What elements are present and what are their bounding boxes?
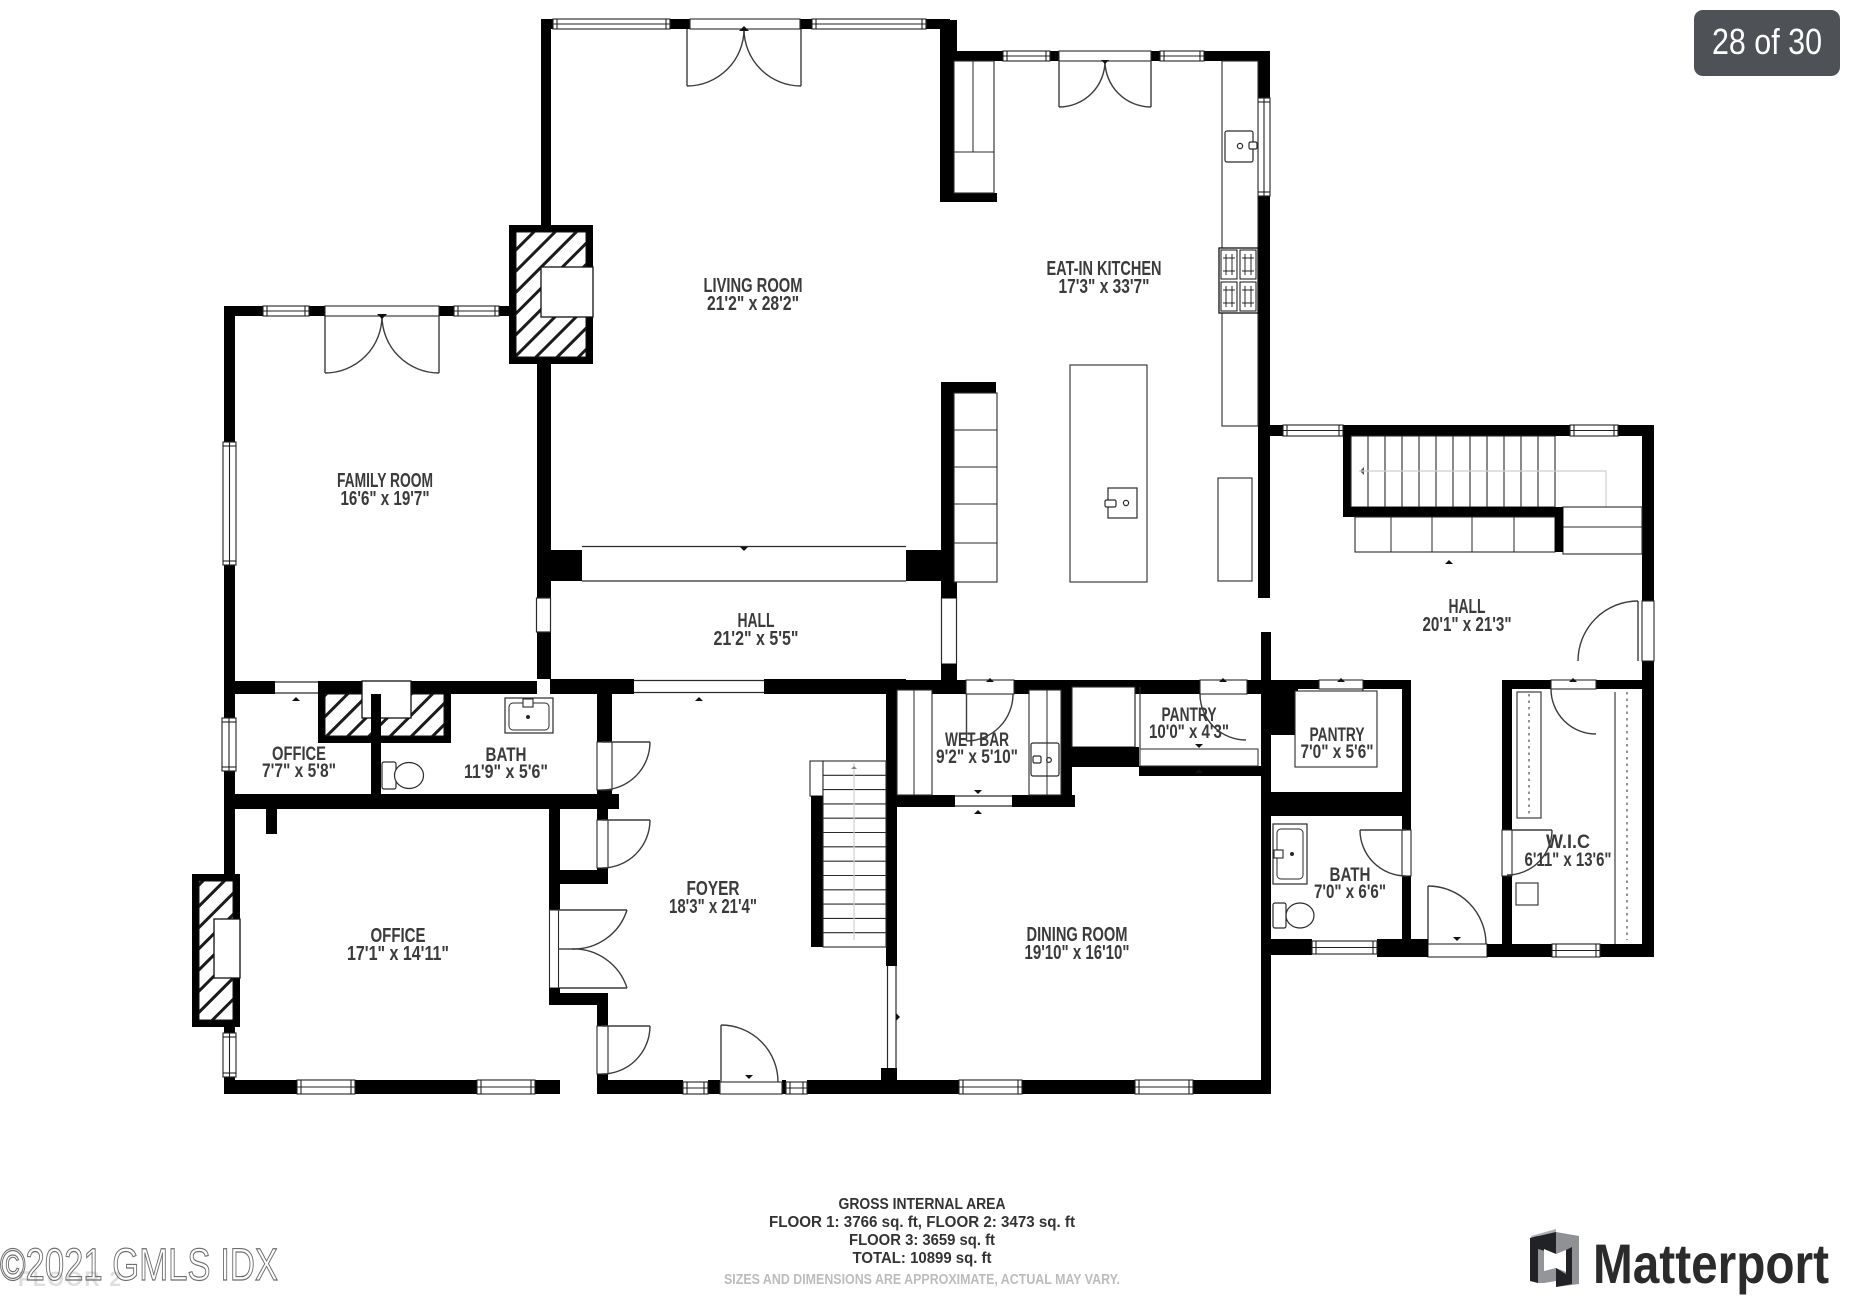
svg-text:SIZES AND DIMENSIONS ARE APPRO: SIZES AND DIMENSIONS ARE APPROXIMATE, AC… xyxy=(724,1272,1120,1288)
svg-text:7'0" x 5'6": 7'0" x 5'6" xyxy=(1301,742,1374,763)
svg-text:6'11" x 13'6": 6'11" x 13'6" xyxy=(1525,850,1612,871)
svg-text:©2021 GMLS IDX: ©2021 GMLS IDX xyxy=(0,1239,278,1290)
svg-text:FLOOR 3: 3659 sq. ft: FLOOR 3: 3659 sq. ft xyxy=(849,1232,996,1249)
svg-text:16'6" x 19'7": 16'6" x 19'7" xyxy=(341,488,430,510)
svg-text:10'0" x 4'3": 10'0" x 4'3" xyxy=(1149,722,1229,743)
svg-text:7'7" x 5'8": 7'7" x 5'8" xyxy=(262,761,336,782)
svg-text:19'10" x 16'10": 19'10" x 16'10" xyxy=(1025,942,1130,964)
svg-text:18'3" x 21'4": 18'3" x 21'4" xyxy=(669,896,757,918)
svg-text:17'1" x 14'11": 17'1" x 14'11" xyxy=(347,943,449,965)
svg-text:FLOOR 1: 3766 sq. ft, FLOOR 2:: FLOOR 1: 3766 sq. ft, FLOOR 2: 3473 sq. … xyxy=(769,1214,1076,1231)
svg-text:21'2" x 5'5": 21'2" x 5'5" xyxy=(714,628,799,650)
svg-text:28 of 30: 28 of 30 xyxy=(1712,21,1822,62)
svg-text:11'9" x 5'6": 11'9" x 5'6" xyxy=(464,762,548,783)
svg-text:17'3" x 33'7": 17'3" x 33'7" xyxy=(1059,276,1150,298)
svg-text:GROSS INTERNAL AREA: GROSS INTERNAL AREA xyxy=(839,1196,1006,1213)
svg-text:9'2" x 5'10": 9'2" x 5'10" xyxy=(936,747,1018,768)
svg-text:21'2" x 28'2": 21'2" x 28'2" xyxy=(707,293,799,315)
svg-text:Matterport: Matterport xyxy=(1593,1232,1829,1295)
svg-text:20'1" x 21'3": 20'1" x 21'3" xyxy=(1423,614,1512,636)
svg-text:7'0" x 6'6": 7'0" x 6'6" xyxy=(1314,882,1386,903)
svg-text:TOTAL: 10899 sq. ft: TOTAL: 10899 sq. ft xyxy=(853,1250,993,1267)
